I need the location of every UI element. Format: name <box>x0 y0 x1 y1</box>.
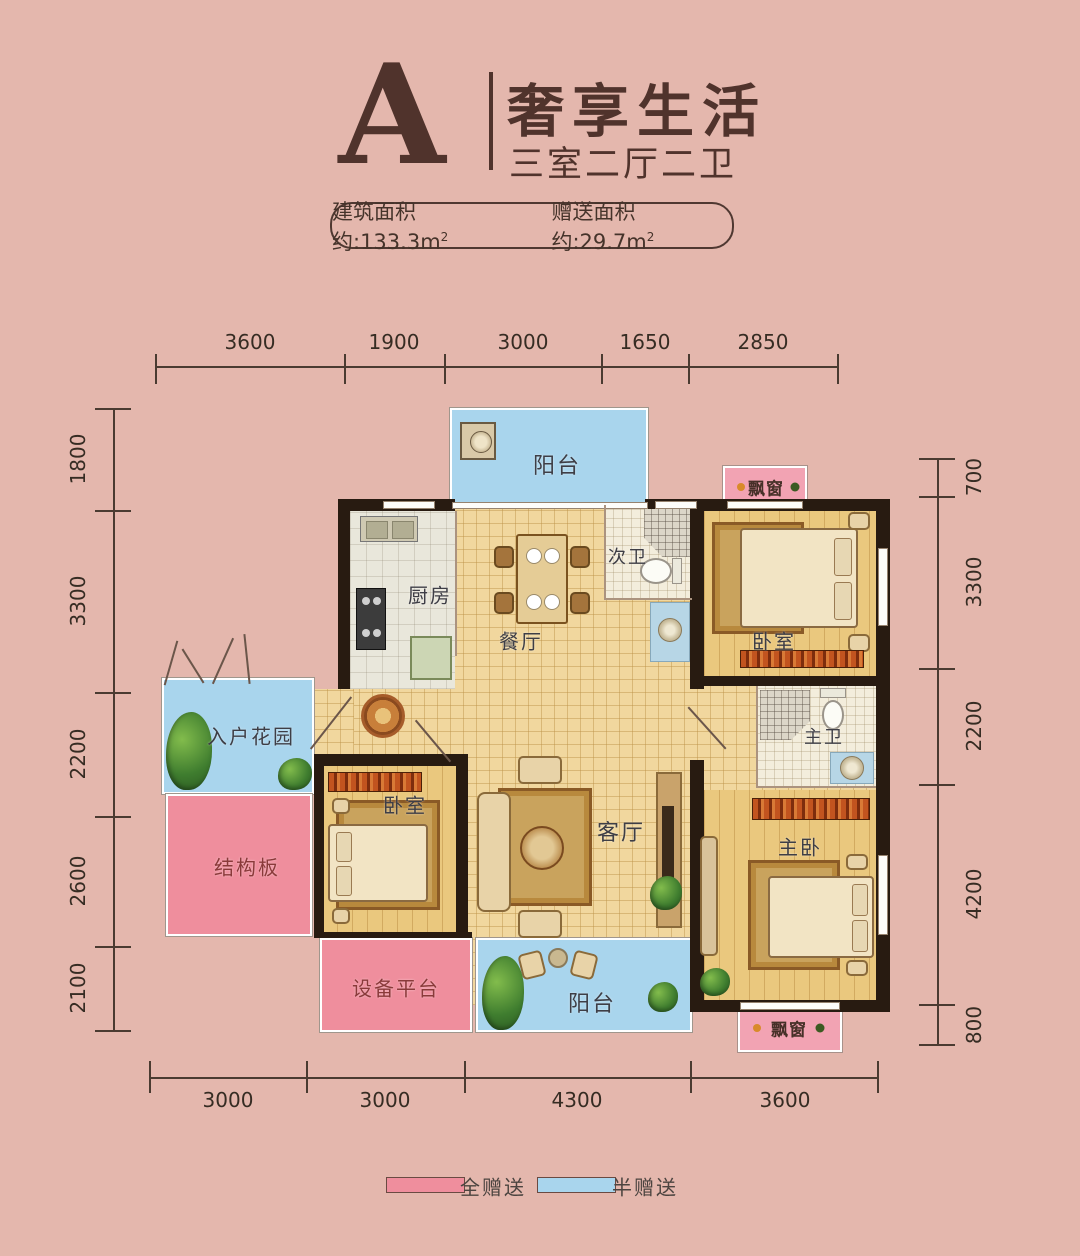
title-divider <box>489 72 493 170</box>
room-label-structural: 结构板 <box>214 852 280 881</box>
nightstand <box>846 960 868 976</box>
dim-right-0: 700 <box>962 458 986 496</box>
sink-icon <box>658 618 682 642</box>
dim-top-2: 3000 <box>498 330 549 354</box>
pillow <box>834 538 852 576</box>
dim-tick <box>690 1061 692 1093</box>
room-label-bedroom2: 卧室 <box>752 626 796 655</box>
room-label-balcony-top: 阳台 <box>533 448 581 480</box>
room-label-kitchen: 厨房 <box>408 580 452 609</box>
dining-chair <box>494 546 514 568</box>
entry-gate-line <box>243 634 250 684</box>
dim-tick <box>95 1030 131 1032</box>
bath2-window <box>655 501 697 509</box>
flower-icon <box>791 483 800 492</box>
nightstand <box>846 854 868 870</box>
dim-line-bottom <box>149 1077 879 1079</box>
room-label-living: 客厅 <box>597 815 645 847</box>
pillow <box>336 866 352 896</box>
dim-tick <box>95 408 131 410</box>
armchair <box>518 910 562 938</box>
partition-line <box>756 786 876 788</box>
partition-line <box>455 511 457 656</box>
wardrobe-icon <box>752 798 870 820</box>
flower-icon <box>753 1024 761 1032</box>
sink-basin <box>366 521 388 539</box>
balcony-table <box>548 948 568 968</box>
pillow <box>852 884 868 916</box>
plant-icon <box>278 758 312 790</box>
dim-tick <box>95 946 131 948</box>
dim-tick <box>95 692 131 694</box>
dining-chair <box>494 592 514 614</box>
dim-left-4: 2100 <box>66 963 90 1014</box>
dim-tick <box>601 354 603 384</box>
pillow <box>852 920 868 952</box>
burner <box>362 629 370 637</box>
kitchen-sink-icon <box>360 516 418 542</box>
dim-right-3: 4200 <box>962 869 986 920</box>
plant-icon <box>482 956 524 1030</box>
dim-tick <box>95 510 131 512</box>
dim-tick <box>919 784 955 786</box>
bench <box>700 836 718 956</box>
legend-label-full-gift: 全赠送 <box>460 1172 526 1201</box>
plant-icon <box>700 968 730 996</box>
partition-line <box>604 505 606 600</box>
nightstand <box>332 908 350 924</box>
dim-top-1: 1900 <box>369 330 420 354</box>
dim-tick <box>149 1061 151 1093</box>
dim-bottom-2: 4300 <box>552 1088 603 1112</box>
dim-tick <box>688 354 690 384</box>
plate <box>526 594 542 610</box>
plant-icon <box>648 982 678 1012</box>
room-label-bath2: 次卫 <box>608 543 648 569</box>
dim-tick <box>919 496 955 498</box>
toilet-tank <box>672 558 682 584</box>
nightstand <box>848 512 870 530</box>
plate <box>544 548 560 564</box>
dim-line-left <box>113 408 115 1032</box>
dim-right-2: 2200 <box>962 701 986 752</box>
dim-top-3: 1650 <box>620 330 671 354</box>
bay-label-top: 飘窗 <box>748 475 784 500</box>
room-label-master-bedroom: 主卧 <box>778 832 822 861</box>
bay-bottom-sill <box>740 1002 840 1010</box>
wall-segment <box>690 676 890 686</box>
dim-tick <box>464 1061 466 1093</box>
dim-left-1: 3300 <box>66 576 90 627</box>
area-pill: 建筑面积约:133.3m2 赠送面积约:29.7m2 <box>330 202 734 249</box>
built-area-label: 建筑面积约:133.3m2 <box>332 196 525 256</box>
armchair <box>518 756 562 784</box>
dim-top-4: 2850 <box>738 330 789 354</box>
room-label-master-bath: 主卫 <box>804 723 844 749</box>
floorplan-page: A 奢享生活 三室二厅二卫 建筑面积约:133.3m2 赠送面积约:29.7m2… <box>0 0 1080 1256</box>
room-label-dining: 餐厅 <box>499 626 543 655</box>
pillow <box>336 832 352 862</box>
bedroom2-window <box>878 548 888 626</box>
legend-label-half-gift: 半赠送 <box>612 1172 678 1201</box>
sofa-icon <box>477 792 511 912</box>
plant-icon <box>650 876 682 910</box>
plan-letter: A <box>332 40 452 190</box>
dim-right-4: 800 <box>962 1006 986 1044</box>
room-label-equipment: 设备平台 <box>352 973 440 1002</box>
dim-top-0: 3600 <box>225 330 276 354</box>
bay-top-sill <box>727 501 803 509</box>
sink-basin <box>392 521 414 539</box>
dim-tick <box>344 354 346 384</box>
flower-icon <box>737 483 745 491</box>
dim-tick <box>837 354 839 384</box>
washing-machine-icon <box>460 422 496 460</box>
gift-area-label: 赠送面积约:29.7m2 <box>551 196 732 256</box>
dim-tick <box>919 1044 955 1046</box>
coffee-table-icon <box>520 826 564 870</box>
dim-bottom-1: 3000 <box>360 1088 411 1112</box>
room-label-bedroom3: 卧室 <box>383 790 427 819</box>
toilet-tank <box>820 688 846 698</box>
dim-tick <box>919 458 955 460</box>
bed-icon <box>328 824 428 902</box>
dim-left-0: 1800 <box>66 434 90 485</box>
wall-segment <box>456 754 468 938</box>
dim-right-1: 3300 <box>962 557 986 608</box>
dim-tick <box>877 1061 879 1093</box>
sink-icon <box>840 756 864 780</box>
kitchen-cabinet <box>410 636 452 680</box>
dining-chair <box>570 546 590 568</box>
plant-icon <box>166 712 212 790</box>
dim-tick <box>155 354 157 384</box>
bed-icon <box>768 876 874 958</box>
master-window <box>878 855 888 935</box>
plate <box>526 548 542 564</box>
dim-tick <box>95 816 131 818</box>
title-subhead: 三室二厅二卫 <box>509 136 737 187</box>
room-label-balcony-bottom: 阳台 <box>568 986 616 1018</box>
legend-swatch-full-gift <box>386 1177 465 1193</box>
dining-table-icon <box>516 534 568 624</box>
plate <box>544 594 560 610</box>
dim-tick <box>919 1004 955 1006</box>
flower-icon <box>816 1024 825 1033</box>
balcony-door-sill <box>452 502 648 509</box>
tv-icon <box>662 806 674 882</box>
partition-line <box>756 686 758 788</box>
kitchen-window <box>383 501 435 509</box>
nightstand <box>332 798 350 814</box>
dim-bottom-3: 3600 <box>760 1088 811 1112</box>
wall-segment <box>690 499 704 689</box>
partition-line <box>604 598 692 600</box>
washer-drum-icon <box>470 431 492 453</box>
bay-label-bottom: 飘窗 <box>771 1016 807 1041</box>
bed-icon <box>740 528 858 628</box>
dim-tick <box>306 1061 308 1093</box>
dim-left-2: 2200 <box>66 729 90 780</box>
dim-line-top <box>155 366 838 368</box>
dim-left-3: 2600 <box>66 856 90 907</box>
dim-tick <box>919 668 955 670</box>
dim-tick <box>444 354 446 384</box>
dim-line-right <box>937 458 939 1046</box>
burner <box>373 597 381 605</box>
floor-medallion <box>361 694 405 738</box>
wall-segment <box>316 932 472 938</box>
dining-chair <box>570 592 590 614</box>
pillow <box>834 582 852 620</box>
burner <box>373 629 381 637</box>
wall-segment <box>314 754 324 938</box>
stove-icon <box>356 588 386 650</box>
room-label-foyer-garden: 入户花园 <box>207 721 295 750</box>
wall-segment <box>338 499 350 689</box>
burner <box>362 597 370 605</box>
legend-swatch-half-gift <box>537 1177 616 1193</box>
dim-bottom-0: 3000 <box>203 1088 254 1112</box>
